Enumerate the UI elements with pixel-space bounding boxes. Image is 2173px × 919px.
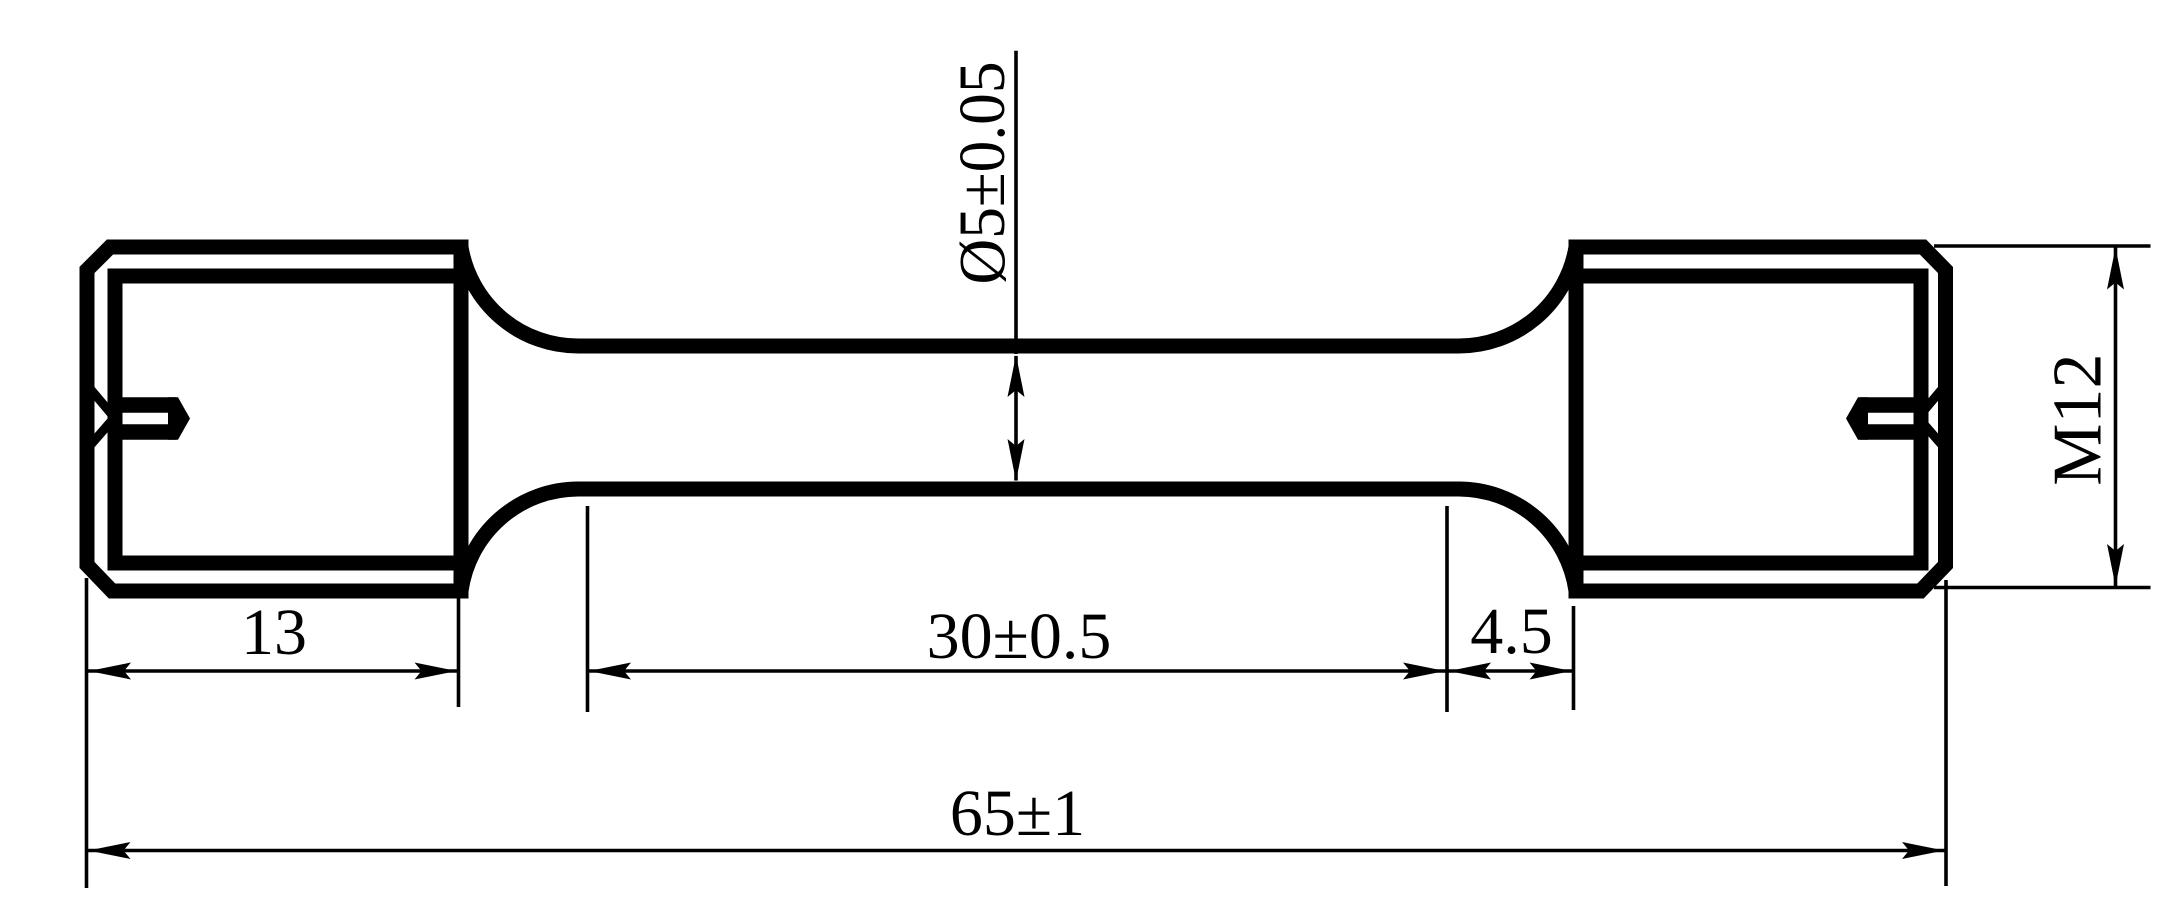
svg-text:30±0.5: 30±0.5	[927, 600, 1112, 673]
svg-text:M12: M12	[2040, 353, 2117, 485]
svg-text:Ø5±0.05: Ø5±0.05	[946, 62, 1019, 285]
svg-text:4.5: 4.5	[1470, 595, 1553, 668]
svg-text:65±1: 65±1	[950, 777, 1085, 850]
svg-text:13: 13	[241, 596, 307, 669]
